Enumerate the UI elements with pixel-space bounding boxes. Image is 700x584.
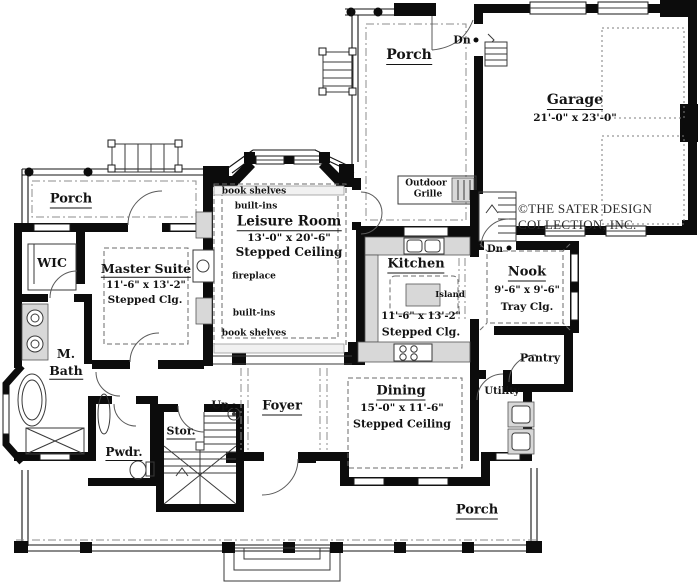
room-dims-nook: 9'-6" x 9'-6" <box>494 286 560 296</box>
room-label-nook: Nook <box>508 266 546 279</box>
room-label-garage: Garage <box>547 93 603 107</box>
room-label-foyer: Foyer <box>262 400 302 413</box>
room-label-dining: Dining <box>376 385 425 398</box>
room-label-master: Master Suite <box>101 263 191 276</box>
room-dims-garage: 21'-0" x 23'-0" <box>533 113 617 124</box>
stairs-direction-arrow-icon <box>176 468 188 476</box>
garage-bay-outline <box>602 28 684 118</box>
grille-label-1: Outdoor <box>405 180 447 189</box>
fireplace-box <box>193 250 214 282</box>
room-label-porch-top: Porch <box>386 48 432 62</box>
sink-2 <box>27 336 43 352</box>
stair-label-dn-nook: Dn <box>487 245 503 255</box>
front-steps <box>222 542 343 581</box>
grille-label-2: Grille <box>414 191 442 200</box>
room-dims-master: 11'-6" x 13'-2" <box>106 281 186 291</box>
stair-label-dn-garage: Dn <box>453 35 471 46</box>
sink <box>27 310 43 326</box>
annotation-book-shelves-top: book shelves <box>222 188 286 197</box>
porch-steps-left <box>108 140 182 172</box>
stair-label-up: Up <box>211 400 228 411</box>
room-ceiling-nook: Tray Clg. <box>501 302 554 313</box>
room-label-porch-left: Porch <box>50 193 92 206</box>
porch-steps-upper <box>319 48 356 95</box>
book-shelves-strip-bottom <box>214 344 344 353</box>
room-ceiling-kitchen: Stepped Clg. <box>382 327 460 338</box>
room-dims-leisure: 13'-0" x 20'-6" <box>247 233 331 244</box>
room-dims-dining: 15'-0" x 11'-6" <box>360 403 444 414</box>
annotation-fireplace: fireplace <box>232 273 276 282</box>
floor-plan-drawing <box>0 0 700 584</box>
room-label-mbath-1: M. <box>57 348 75 361</box>
annotation-island: Island <box>435 291 465 300</box>
copyright-line-1: ©THE SATER DESIGN <box>518 201 652 217</box>
annotation-built-ins-top: built-ins <box>235 203 278 212</box>
toilet <box>130 461 146 479</box>
room-label-mbath-2: Bath <box>49 365 83 378</box>
room-label-porch-bottom: Porch <box>456 504 498 517</box>
copyright-line-2: COLLECTION, INC. <box>518 217 637 233</box>
porch-railings <box>14 8 542 554</box>
room-ceiling-master: Stepped Clg. <box>108 295 183 306</box>
room-ceiling-leisure: Stepped Ceiling <box>236 246 343 258</box>
leisure-fixtures <box>193 212 214 324</box>
room-label-stor: Stor. <box>167 426 196 437</box>
annotation-book-shelves-bottom: book shelves <box>222 330 286 339</box>
built-in-shelf-2 <box>196 298 212 324</box>
room-label-pwdr: Pwdr. <box>105 446 142 458</box>
room-label-leisure: Leisure Room <box>237 215 342 229</box>
room-label-wic: WIC <box>37 257 67 270</box>
annotation-built-ins-bottom: built-ins <box>233 310 276 319</box>
room-ceiling-dining: Stepped Ceiling <box>353 419 451 430</box>
room-label-pantry: Pantry <box>520 353 560 364</box>
room-dims-kitchen: 11'-6" x 13'-2" <box>381 312 461 322</box>
built-in-shelf <box>196 212 212 238</box>
leisure-bay-window <box>222 152 352 189</box>
stairs-direction-arrow-icon-2 <box>486 205 498 213</box>
room-label-kitchen: Kitchen <box>387 258 444 271</box>
room-label-utility: Utility <box>484 387 519 397</box>
top-porch-structure <box>108 3 507 204</box>
floor-plan: Porch Dn Garage 21'-0" x 23'-0" Outdoor … <box>0 0 700 584</box>
